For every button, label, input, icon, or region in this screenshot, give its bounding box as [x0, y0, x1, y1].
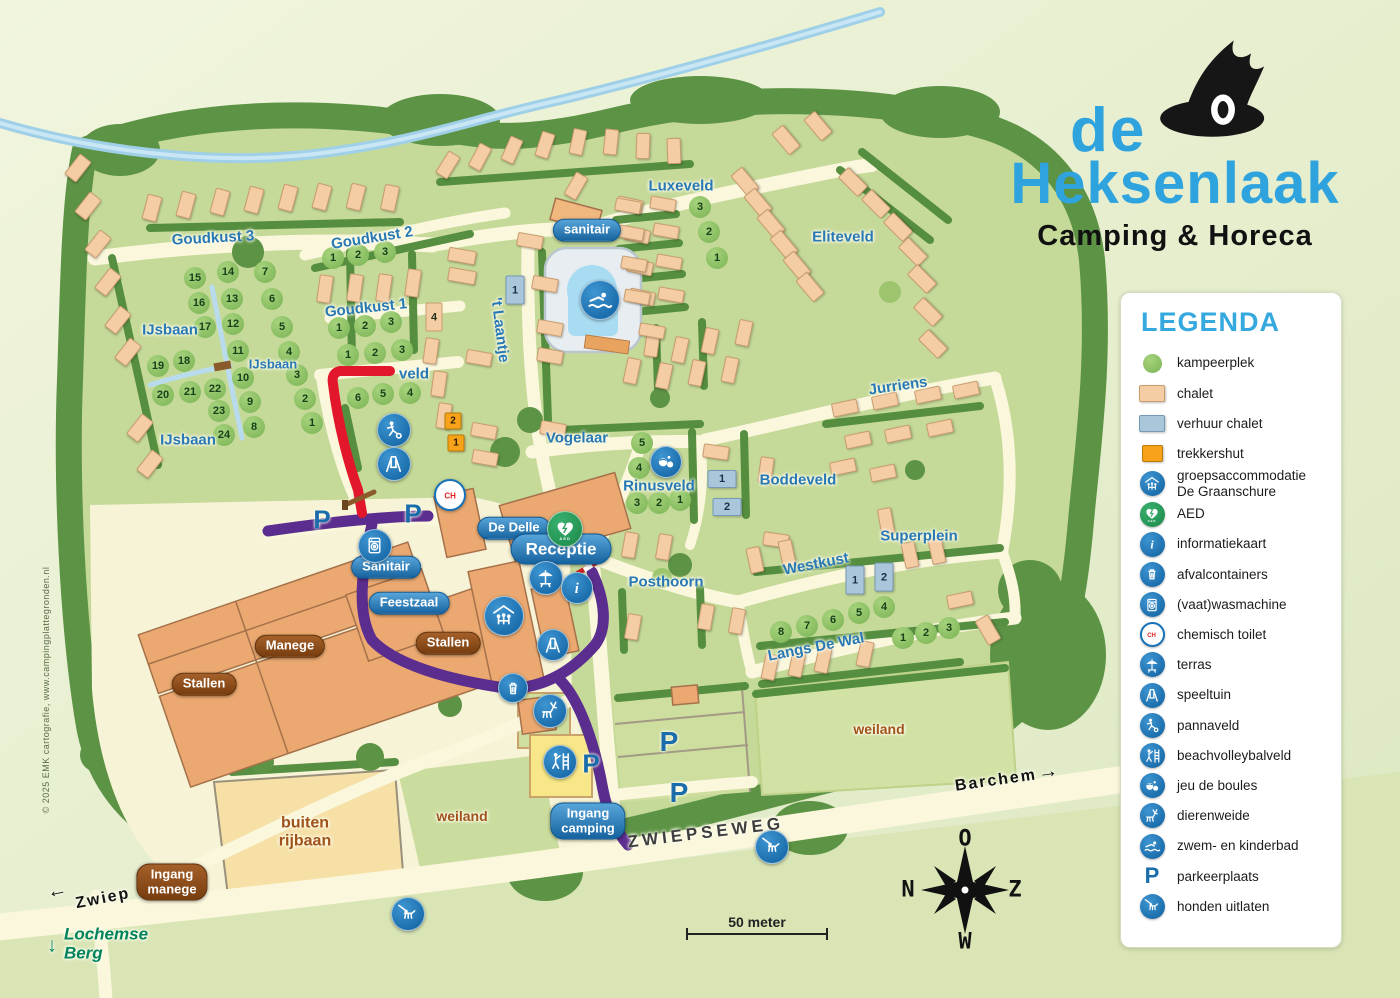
chalet: [926, 418, 954, 437]
map-badge: Stallen: [416, 632, 481, 655]
verhuur-chalet: 1: [846, 566, 865, 595]
chalet: [900, 541, 919, 569]
legend-item-label: pannaveld: [1177, 718, 1239, 734]
chalet: [531, 275, 559, 293]
legend-item-label: terras: [1177, 657, 1212, 673]
circle-legend-icon: [1139, 354, 1165, 373]
panna-legend-icon: [1139, 713, 1165, 738]
kampeerplek-number: 2: [698, 221, 720, 243]
chalet: [536, 319, 564, 337]
chalet: [636, 133, 651, 159]
kampeerplek-number: 2: [294, 388, 316, 410]
kampeerplek-number: 6: [347, 387, 369, 409]
kampeerplek-number: 16: [188, 292, 210, 314]
chalet: [404, 268, 422, 298]
chalet: [447, 247, 477, 266]
panna-icon: [377, 413, 411, 447]
chalet: [311, 183, 332, 212]
legend-item: verhuur chalet: [1139, 408, 1341, 438]
numbered-chalet: 4: [426, 303, 443, 332]
kampeerplek-number: 18: [173, 350, 195, 372]
deer-legend-icon: [1139, 803, 1165, 828]
legend-item: Pparkeerplaats: [1139, 861, 1341, 891]
parking-mark: P: [582, 749, 599, 780]
chalet: [346, 183, 367, 212]
witch-hat-icon: [1145, 33, 1275, 143]
logo-line-subtitle: Camping & Horeca: [985, 220, 1365, 253]
kampeerplek-number: 9: [239, 391, 261, 413]
kampeerplek-number: 19: [147, 355, 169, 377]
kampeerplek-number: 2: [364, 342, 386, 364]
terras-icon: [529, 561, 563, 595]
parking-mark: P: [660, 726, 679, 758]
chalet: [209, 188, 230, 217]
kampeerplek-number: 4: [399, 382, 421, 404]
chalet: [536, 347, 564, 365]
logo-line-heksenlaak: Heksenlaak: [985, 150, 1365, 217]
aed-icon: [547, 511, 583, 547]
chalet: [94, 267, 122, 297]
chalet: [844, 430, 872, 449]
parking-mark: P: [670, 777, 689, 809]
legend-item: pannaveld: [1139, 710, 1341, 740]
chalet: [952, 380, 980, 399]
legend-item: trekkershut: [1139, 439, 1341, 469]
chalet: [621, 531, 639, 559]
compass-west: W: [958, 930, 971, 955]
chalet: [447, 267, 477, 286]
chalet: [624, 613, 642, 641]
chalet: [617, 224, 645, 241]
chalet: [316, 274, 334, 304]
chalet: [913, 297, 943, 327]
beach-icon: [543, 745, 577, 779]
kampeerplek-number: 2: [354, 315, 376, 337]
camping-map: 1121221415147161361712511419181032021229…: [0, 0, 1400, 998]
chalet: [687, 359, 706, 387]
chalet: [243, 186, 264, 215]
map-label: ←: [45, 878, 71, 905]
map-label: Luxeveld: [648, 178, 713, 195]
chalet: [470, 422, 498, 440]
afval-icon: [498, 673, 528, 703]
chalet: [422, 337, 439, 365]
chalet: [861, 189, 891, 219]
legend-item-label: trekkershut: [1177, 446, 1244, 462]
chalet: [104, 305, 132, 335]
deer-icon: [533, 694, 567, 728]
kampeerplek-number: 8: [770, 621, 792, 643]
map-label: Rinusveld: [623, 478, 695, 495]
dog-icon: [391, 897, 425, 931]
map-label: →: [1037, 759, 1062, 785]
scale-label-wrap: 50 meter: [687, 914, 827, 934]
swing-legend-icon: [1139, 683, 1165, 708]
copyright-text: © 2025 EMK cartografie, www.campingplatt…: [41, 567, 51, 814]
map-label: Posthoorn: [629, 574, 704, 591]
chalet: [946, 590, 974, 609]
chalet: [728, 607, 746, 635]
kampeerplek-number: 5: [631, 432, 653, 454]
chalet: [136, 449, 164, 479]
kampeerplek-number: 14: [217, 261, 239, 283]
chalet: [534, 130, 555, 159]
compass-north: N: [901, 878, 914, 903]
chalet: [622, 357, 641, 385]
kampeerplek-number: 11: [227, 340, 249, 362]
chalet: [720, 356, 739, 384]
chalet: [667, 138, 682, 164]
map-label: weiland: [853, 721, 904, 737]
map-label: Goudkust 2: [330, 223, 414, 253]
chalet: [346, 273, 364, 303]
legend-item-label: AED: [1177, 506, 1205, 522]
chalet: [907, 264, 937, 294]
legend-item: beachvolleybalveld: [1139, 740, 1341, 770]
ch-legend-icon: [1139, 622, 1165, 647]
kampeerplek-number: 2: [648, 492, 670, 514]
map-label: IJsbaan: [160, 432, 216, 449]
kampeerplek-number: 3: [391, 339, 413, 361]
map-label: IJsbaan: [142, 322, 198, 339]
swim-icon: [580, 280, 620, 320]
kampeerplek-number: 5: [372, 383, 394, 405]
chalet: [898, 237, 928, 267]
legend-items: kampeerplekchaletverhuur chalettrekkersh…: [1139, 348, 1341, 922]
kampeerplek-number: 6: [261, 288, 283, 310]
map-label: IJsbaan: [249, 357, 297, 372]
legend-item: groepsaccommodatie De Graanschure: [1139, 469, 1341, 499]
kampeerplek-number: 1: [301, 412, 323, 434]
parking-mark: P: [313, 505, 330, 536]
chalet: [74, 191, 102, 221]
parking-mark: P: [404, 499, 421, 530]
kampeerplek-number: 21: [179, 381, 201, 403]
trekkershut: 2: [445, 413, 462, 430]
map-label: Goudkust 3: [171, 227, 254, 248]
legend-item-label: dierenweide: [1177, 808, 1250, 824]
kampeerplek-number: 1: [892, 627, 914, 649]
kampeerplek-number: 5: [848, 602, 870, 624]
chalet: [884, 424, 912, 443]
legend-item-label: honden uitlaten: [1177, 899, 1269, 915]
swim-legend-icon: [1139, 834, 1165, 859]
map-label: ↓: [47, 935, 57, 958]
chalet: [114, 337, 142, 367]
kampeerplek-number: 7: [254, 261, 276, 283]
kampeerplek-number: 3: [938, 617, 960, 639]
beach-legend-icon: [1139, 743, 1165, 768]
chalet: [831, 398, 859, 417]
chalet: [795, 271, 824, 302]
kampeerplek-number: 1: [706, 247, 728, 269]
map-label: Lochemse Berg: [64, 925, 148, 962]
chalet: [803, 110, 832, 141]
map-label: Eliteveld: [812, 229, 874, 246]
kampeerplek-number: 24: [213, 424, 235, 446]
chalet: [500, 135, 523, 164]
chalet: [697, 603, 715, 631]
kampeerplek-number: 6: [822, 609, 844, 631]
legend-item-label: beachvolleybalveld: [1177, 748, 1291, 764]
terras-legend-icon: [1139, 652, 1165, 677]
ch-icon: [434, 479, 466, 511]
legend-item: AED: [1139, 499, 1341, 529]
kampeerplek-number: 8: [243, 416, 265, 438]
kampeerplek-number: 3: [626, 492, 648, 514]
chalet: [649, 195, 677, 212]
kampeerplek-number: 7: [796, 615, 818, 637]
legend-item: afvalcontainers: [1139, 559, 1341, 589]
chalet: [563, 171, 588, 201]
kampeerplek-number: 1: [328, 317, 350, 339]
legend-title: LEGENDA: [1141, 307, 1341, 338]
legend-item: chalet: [1139, 378, 1341, 408]
dog-legend-icon: [1139, 894, 1165, 919]
map-badge: Ingang camping: [550, 802, 625, 839]
kampeerplek-number: 22: [204, 378, 226, 400]
kampeerplek-number: 3: [689, 196, 711, 218]
boules-icon: [650, 446, 682, 478]
chalet: [465, 349, 493, 367]
legend-item-label: informatiekaart: [1177, 536, 1266, 552]
legend-item-label: groepsaccommodatie De Graanschure: [1177, 468, 1306, 499]
boules-legend-icon: [1139, 773, 1165, 798]
dog-icon: [755, 830, 789, 864]
chalet: [516, 232, 544, 250]
legend-item: jeu de boules: [1139, 771, 1341, 801]
kampeerplek-number: 5: [271, 316, 293, 338]
map-badge: Feestzaal: [369, 592, 450, 615]
legend-item-label: afvalcontainers: [1177, 567, 1268, 583]
chalet: [126, 413, 154, 443]
kampeerplek-number: 12: [222, 313, 244, 335]
legend-item-label: (vaat)wasmachine: [1177, 597, 1287, 613]
chalet: [277, 184, 298, 213]
legend-item: speeltuin: [1139, 680, 1341, 710]
groeps-icon: [484, 596, 524, 636]
legend-item-label: parkeerplaats: [1177, 869, 1259, 885]
map-label: Zwiep: [74, 885, 132, 913]
chalet: [771, 124, 800, 155]
chalet-legend-icon: [1139, 385, 1165, 402]
map-label: veld: [399, 366, 429, 383]
chalet: [655, 253, 683, 270]
chalet: [471, 449, 499, 467]
chalet: [670, 336, 689, 364]
washer-icon: [358, 529, 392, 563]
legend-item-label: zwem- en kinderbad: [1177, 838, 1299, 854]
legend-item: (vaat)wasmachine: [1139, 590, 1341, 620]
chalet: [652, 222, 680, 239]
chalet: [700, 327, 719, 355]
kampeerplek-number: 15: [184, 267, 206, 289]
chalet: [603, 128, 620, 155]
kampeerplek-number: 4: [873, 596, 895, 618]
kampeerplek-number: 23: [208, 400, 230, 422]
chalet: [655, 533, 673, 561]
chalet: [734, 319, 753, 347]
chalet: [64, 153, 92, 183]
chalet: [620, 255, 648, 272]
verhuur-chalet: 2: [713, 498, 742, 516]
chalet: [654, 362, 673, 390]
legend-item: chemisch toilet: [1139, 620, 1341, 650]
washer-legend-icon: [1139, 592, 1165, 617]
legend-item: dierenweide: [1139, 801, 1341, 831]
trekkershut: 1: [448, 435, 465, 452]
P-legend-icon: P: [1139, 863, 1165, 889]
chalet: [141, 194, 162, 223]
legend-item-label: chalet: [1177, 386, 1213, 402]
swing-icon: [537, 629, 569, 661]
info-legend-icon: [1139, 532, 1165, 557]
map-badge: sanitair: [553, 219, 621, 242]
map-label: Vogelaar: [546, 430, 608, 447]
chalet: [84, 229, 112, 259]
map-label: Barchem: [954, 766, 1038, 795]
hut-legend-icon: [1139, 445, 1165, 462]
kampeerplek-number: 2: [915, 622, 937, 644]
verhuur-chalet: 2: [875, 563, 894, 592]
legend-item: honden uitlaten: [1139, 891, 1341, 921]
info-icon: [561, 572, 593, 604]
map-label: weiland: [436, 808, 487, 824]
chalet: [435, 150, 461, 179]
swing-icon: [377, 447, 411, 481]
chalet: [468, 142, 493, 172]
legend-item-label: kampeerplek: [1177, 355, 1254, 371]
chalet: [380, 184, 400, 213]
chalet: [869, 463, 897, 482]
chalet: [638, 322, 666, 339]
scale-label: 50 meter: [687, 914, 827, 930]
compass-east: O: [958, 827, 971, 852]
rental-legend-icon: [1139, 415, 1165, 432]
legend-item: zwem- en kinderbad: [1139, 831, 1341, 861]
map-label: Boddeveld: [760, 472, 837, 489]
legend-item: kampeerplek: [1139, 348, 1341, 378]
kampeerplek-number: 13: [221, 288, 243, 310]
legend-item: terras: [1139, 650, 1341, 680]
kampeerplek-number: 4: [628, 457, 650, 479]
map-badge: Manege: [255, 635, 325, 658]
chalet: [568, 128, 587, 156]
map-badge: Ingang manege: [136, 863, 207, 900]
chalet: [430, 370, 447, 398]
verhuur-chalet: 1: [708, 470, 737, 488]
legend-item-label: speeltuin: [1177, 687, 1231, 703]
chalet: [745, 546, 764, 574]
chalet: [838, 167, 868, 197]
kampeerplek-number: 20: [152, 384, 174, 406]
compass-south: Z: [1008, 878, 1021, 903]
map-label: buiten rijbaan: [279, 814, 331, 849]
groeps-legend-icon: [1139, 471, 1165, 496]
legend-panel: LEGENDA kampeerplekchaletverhuur chalett…: [1120, 292, 1342, 948]
chalet: [175, 191, 196, 220]
legend-item-label: jeu de boules: [1177, 778, 1257, 794]
map-label: Superplein: [880, 528, 958, 545]
map-badge: Stallen: [172, 673, 237, 696]
legend-item-label: verhuur chalet: [1177, 416, 1263, 432]
verhuur-chalet: 1: [506, 276, 525, 305]
aed-legend-icon: [1139, 502, 1165, 527]
afval-legend-icon: [1139, 562, 1165, 587]
chalet: [657, 286, 685, 303]
chalet: [918, 329, 948, 359]
kampeerplek-number: 1: [337, 344, 359, 366]
map-badge: Sanitair: [351, 556, 421, 579]
chalet: [975, 614, 1002, 646]
chalet: [702, 443, 730, 460]
legend-item-label: chemisch toilet: [1177, 627, 1266, 643]
legend-item: informatiekaart: [1139, 529, 1341, 559]
